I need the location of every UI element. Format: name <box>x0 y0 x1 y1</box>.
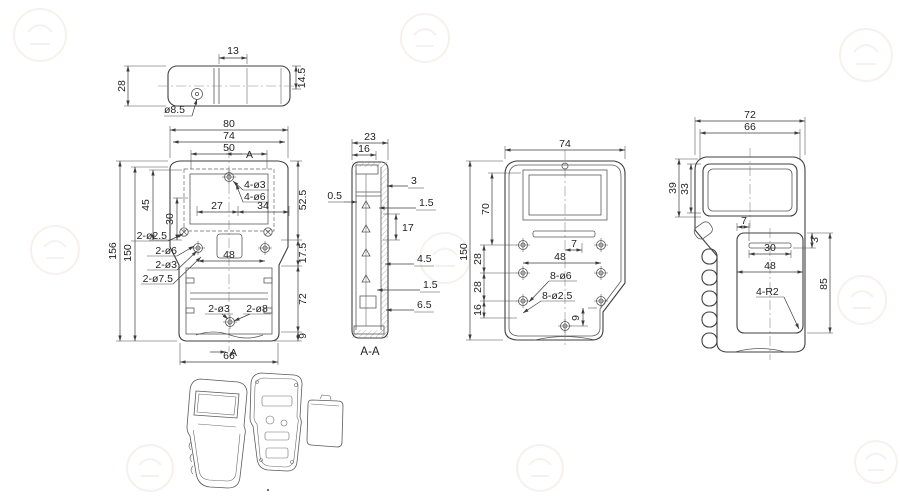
rear-inner-details <box>509 150 621 348</box>
dim-label: 0.5 <box>327 190 342 202</box>
hole-callout: 4-ø3 <box>244 179 266 191</box>
dim-label: 156 <box>107 242 119 260</box>
dim-label: 16 <box>472 304 484 316</box>
top-view-details <box>158 68 300 104</box>
dim-label: 7 <box>741 215 747 227</box>
dim-label: 28 <box>116 80 128 92</box>
iso-front-cover <box>187 379 247 488</box>
hole-callout: 2-ø6 <box>155 245 177 257</box>
dim-label: 14.5 <box>296 68 308 89</box>
dim-label: 9 <box>297 333 309 339</box>
dim-label: 48 <box>554 251 566 263</box>
dim-label: 16 <box>358 143 370 155</box>
rear-outer-view: 72 66 39 33 7 30 3 48 85 4-R2 <box>667 109 833 360</box>
hole-callout: 8-ø2.5 <box>542 290 573 302</box>
dim-label: 33 <box>679 183 691 195</box>
hole-callout: 2-ø8 <box>246 303 268 315</box>
iso-back-shell <box>250 373 302 471</box>
top-view-dimension-lines <box>124 54 301 116</box>
dim-label: 72 <box>744 109 756 121</box>
dim-label: 39 <box>667 182 679 194</box>
hole-callout: 8-ø6 <box>550 270 572 282</box>
dim-label: 1.5 <box>419 197 434 209</box>
dim-label: 48 <box>764 260 776 272</box>
engineering-drawing-sheet: 13 28 14.5 ø8.5 <box>0 0 900 500</box>
dim-label: 150 <box>122 244 134 262</box>
top-view: 13 28 14.5 ø8.5 <box>116 45 308 116</box>
drawing-svg: 13 28 14.5 ø8.5 <box>0 0 900 500</box>
hole-callout: 2-ø7.5 <box>143 273 174 285</box>
dim-label: 7 <box>571 238 577 250</box>
isometric-views <box>187 373 343 491</box>
rear-outer-dimension-lines <box>675 117 833 333</box>
section-title: A-A <box>360 346 380 358</box>
dim-label: 3 <box>809 237 821 243</box>
hole-callout: 2-ø3 <box>155 259 177 271</box>
hole-callout: 2-ø3 <box>208 303 230 315</box>
dim-label: 17.5 <box>297 243 309 264</box>
section-mark: A <box>230 347 237 359</box>
section-mark: A <box>246 149 253 161</box>
sheet-mark <box>267 489 269 491</box>
radius-callout: 4-R2 <box>756 286 779 298</box>
dim-label: 28 <box>472 253 484 265</box>
dim-label: 27 <box>211 200 223 212</box>
dim-label: 1.5 <box>423 279 438 291</box>
dim-label: 48 <box>223 249 235 261</box>
dim-label: 30 <box>164 213 176 225</box>
dim-label: 13 <box>227 45 239 57</box>
dim-label: 30 <box>764 242 776 254</box>
dim-label: 45 <box>140 199 152 211</box>
dim-label: 85 <box>818 278 830 290</box>
dim-label: 9 <box>570 315 582 321</box>
dim-label: 3 <box>411 175 417 187</box>
dim-label: 74 <box>559 138 571 150</box>
dim-label: 80 <box>223 118 235 130</box>
hole-callout: 2-ø2.5 <box>137 230 168 242</box>
dim-label: 50 <box>223 142 235 154</box>
dim-label: 66 <box>744 121 756 133</box>
hole-callout: ø8.5 <box>164 104 185 116</box>
front-view: 80 74 50 A 156 150 45 30 27 34 52.5 17.5… <box>107 118 309 365</box>
dim-label: 4.5 <box>417 253 432 265</box>
front-view-dimension-lines <box>116 126 302 365</box>
iso-battery-cover <box>307 395 343 447</box>
dim-label: 72 <box>297 293 309 305</box>
dim-label: 52.5 <box>297 190 309 211</box>
section-details <box>352 162 388 338</box>
hole-callout: 4-ø6 <box>244 191 266 203</box>
dim-label: 23 <box>364 131 376 143</box>
dim-label: 17 <box>402 222 414 234</box>
dim-label: 70 <box>480 203 492 215</box>
dim-label: 6.5 <box>417 299 432 311</box>
dim-label: 74 <box>223 130 235 142</box>
dim-label: 28 <box>472 281 484 293</box>
rear-inner-view: 74 150 70 28 28 16 7 48 8-ø6 8-ø2.5 9 <box>458 138 625 348</box>
dim-label: 150 <box>458 243 470 261</box>
